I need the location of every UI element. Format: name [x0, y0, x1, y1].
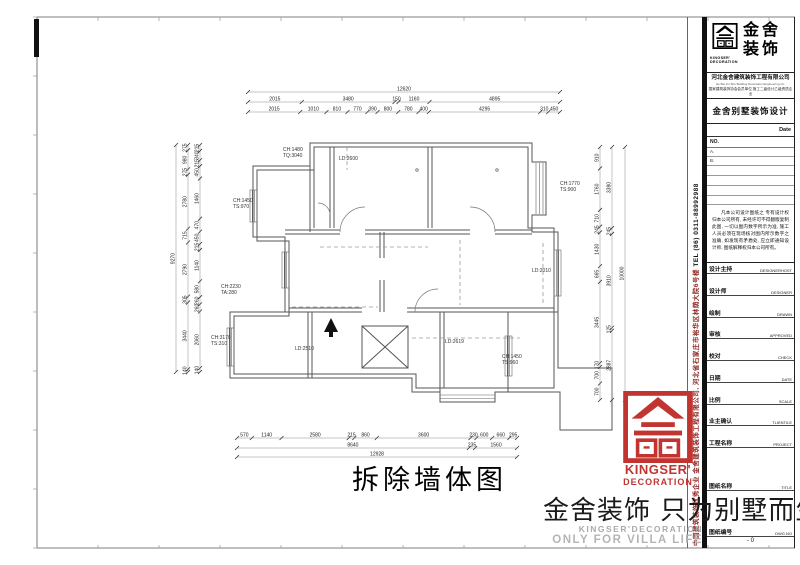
field-label-en: TITLE: [781, 485, 792, 490]
svg-text:295: 295: [509, 433, 518, 439]
field-label-zh: 校对: [709, 351, 721, 360]
plan-label: LD:2600: [339, 157, 358, 163]
svg-text:810: 810: [333, 107, 342, 113]
svg-text:260: 260: [195, 296, 201, 305]
field-label-zh: 日期: [709, 373, 721, 382]
svg-text:3380: 3380: [607, 182, 613, 193]
ruled-line: [707, 196, 794, 206]
svg-text:580: 580: [195, 285, 201, 294]
svg-text:910: 910: [595, 153, 601, 162]
field-label-en: TLIENTILE: [772, 420, 792, 425]
field-label-en: DESIGNERHOST: [760, 268, 792, 273]
svg-text:3600: 3600: [418, 433, 429, 439]
side-tel-text: TEL (86) 0311-88992988: [693, 183, 700, 267]
svg-text:125: 125: [607, 325, 613, 334]
svg-text:450: 450: [550, 107, 559, 113]
svg-text:770: 770: [353, 107, 362, 113]
field-project-name: 工程名称PROJECT: [707, 437, 794, 480]
svg-text:1140: 1140: [261, 433, 272, 439]
rev-row-a: A.: [707, 148, 794, 157]
copyright-notice: 凡本公司设计图纸之 专有设计权归本公司所有, 未经许可不得翻版复制此图, 一切以…: [707, 205, 794, 262]
field-label-zh: 审核: [709, 329, 721, 338]
svg-text:400: 400: [420, 107, 429, 113]
field-label-en: APPROVED: [770, 333, 792, 338]
plan-label: CH:3170 TS:310: [211, 336, 231, 347]
field-drawn: 绘制DRAWN: [707, 307, 794, 329]
field-scale: 比例SCALE: [707, 394, 794, 416]
brand-name-en: KINGSER' DECORATION: [710, 56, 738, 64]
kingser-logo-icon: [712, 22, 738, 50]
svg-text:700: 700: [595, 387, 601, 396]
company-section: 河北金舍建筑装饰工程有限公司 He Bei Jin She Building D…: [707, 73, 794, 99]
field-label-en: DESIGNER: [771, 290, 792, 295]
svg-text:450: 450: [195, 233, 201, 242]
watermark-brand-en1: KINGSER': [610, 462, 706, 477]
field-date: 日期DATE: [707, 372, 794, 394]
floor-plan-walls: [230, 143, 612, 430]
border-corner-bar: [34, 19, 39, 57]
svg-text:1010: 1010: [308, 107, 319, 113]
svg-text:700: 700: [595, 371, 601, 380]
field-label-zh: 图纸编号: [709, 527, 732, 536]
field-label-en: CHECK: [778, 355, 792, 360]
plan-label: CH:1770 TS:900: [560, 182, 580, 193]
company-name-zh: 河北金舍建筑装饰工程有限公司: [707, 75, 794, 82]
brand-zh-line2: 装饰: [743, 40, 781, 59]
svg-text:140: 140: [183, 366, 189, 375]
title-block: 金舍 装饰 KINGSER' DECORATION 河北金舍建筑装饰工程有限公司…: [707, 17, 795, 548]
svg-text:1460: 1460: [195, 193, 201, 204]
field-label-zh: 图纸名称: [709, 481, 732, 490]
no-label: NO.: [707, 137, 794, 148]
field-sheet-number: 图纸编号DWG.NO - 0: [707, 526, 794, 548]
svg-text:2015: 2015: [269, 107, 280, 113]
svg-text:980: 980: [183, 155, 189, 164]
svg-text:660: 660: [497, 433, 506, 439]
svg-text:860: 860: [361, 433, 370, 439]
field-client-confirm: 业主确认TLIENTILE: [707, 415, 794, 437]
svg-text:3440: 3440: [183, 330, 189, 341]
field-check: 校对CHECK: [707, 350, 794, 372]
ruled-line: [707, 186, 794, 196]
field-label-en: SCALE: [779, 399, 792, 404]
kingser-logo-watermark-icon: [622, 389, 694, 465]
ruled-line: [707, 166, 794, 176]
plan-label: CH:1450 TS:960: [502, 355, 522, 366]
plan-label: LD:2619: [445, 340, 464, 346]
svg-text:1760: 1760: [595, 183, 601, 194]
field-label-zh: 设计师: [709, 286, 726, 295]
svg-text:150: 150: [392, 97, 401, 103]
svg-text:600: 600: [480, 433, 489, 439]
svg-text:2790: 2790: [183, 264, 189, 275]
svg-text:10000: 10000: [620, 266, 626, 280]
field-label-zh: 绘制: [709, 308, 721, 317]
door-arcs: [318, 203, 495, 312]
field-designerhost: 设计主持DESIGNERHOST: [707, 263, 794, 285]
svg-text:800: 800: [384, 107, 393, 113]
drawing-sheet: 1262020153480150116048952015101081077039…: [0, 0, 800, 565]
svg-text:665: 665: [595, 270, 601, 279]
svg-text:9270: 9270: [171, 253, 177, 264]
field-label-zh: 工程名称: [709, 438, 732, 447]
field-designer: 设计师DESIGNER: [707, 285, 794, 307]
brand-en-line2: DECORATION: [710, 60, 738, 64]
project-type-title: 金舍别墅装饰设计: [707, 99, 794, 124]
company-note: 国家建筑装饰协会会员单位 施工二级设计乙级资质企业: [707, 87, 794, 97]
svg-text:470: 470: [195, 221, 201, 230]
brand-zh-line1: 金舍: [743, 21, 781, 40]
plan-label: CH:1450 TS:970: [233, 199, 253, 210]
rev-row-b: B.: [707, 157, 794, 166]
svg-text:715: 715: [183, 231, 189, 240]
title-block-brand: 金舍 装饰 KINGSER' DECORATION: [707, 17, 794, 73]
sheet-title: 拆除墙体图: [352, 458, 507, 497]
svg-text:2780: 2780: [183, 196, 189, 207]
plan-label: LD:2010: [532, 269, 551, 275]
field-label-en: DATE: [782, 377, 792, 382]
svg-text:4295: 4295: [479, 107, 490, 113]
svg-text:2060: 2060: [195, 334, 201, 345]
svg-text:8640: 8640: [347, 443, 358, 449]
svg-text:1560: 1560: [491, 443, 502, 449]
svg-text:3445: 3445: [595, 317, 601, 328]
field-label-en: DWG.NO: [775, 531, 792, 536]
svg-text:4895: 4895: [489, 97, 500, 103]
field-label-zh: 比例: [709, 395, 721, 404]
svg-text:2887: 2887: [607, 360, 613, 371]
svg-text:12620: 12620: [397, 87, 411, 93]
field-label-zh: 业主确认: [709, 416, 732, 425]
watermark-sub2: ONLY FOR VILLA LIFE: [545, 534, 703, 546]
svg-text:570: 570: [240, 433, 249, 439]
field-approved: 审核APPROVED: [707, 328, 794, 350]
ruled-line: [707, 176, 794, 186]
svg-text:3910: 3910: [607, 275, 613, 286]
svg-text:1160: 1160: [409, 97, 420, 103]
field-label-en: PROJECT: [773, 442, 792, 447]
field-label-zh: 设计主持: [709, 264, 732, 273]
north-arrow-icon: [324, 318, 338, 337]
svg-text:390: 390: [368, 107, 377, 113]
watermark-brand-en2: DECORATION: [610, 477, 706, 487]
svg-text:260: 260: [195, 304, 201, 313]
svg-text:2580: 2580: [310, 433, 321, 439]
svg-text:340: 340: [195, 151, 201, 160]
watermark-slogan: 金舍装饰 只为别墅而生。: [543, 490, 800, 527]
plan-label: CH:1480 TQ:3040: [283, 148, 303, 159]
svg-text:310: 310: [540, 107, 549, 113]
date-label: Date: [707, 124, 794, 137]
svg-text:3480: 3480: [343, 97, 354, 103]
svg-text:780: 780: [404, 107, 413, 113]
svg-text:450: 450: [195, 168, 201, 177]
svg-text:1140: 1140: [195, 260, 201, 271]
svg-text:12928: 12928: [370, 452, 384, 458]
brand-name-zh: 金舍 装饰: [743, 21, 781, 59]
svg-text:1430: 1430: [595, 244, 601, 255]
sheet-number-value: - 0: [707, 538, 794, 544]
plan-label: CH:2230 TA:280: [221, 285, 241, 296]
plan-label: LD:2510: [295, 347, 314, 353]
svg-text:710: 710: [595, 214, 601, 223]
svg-text:2015: 2015: [269, 97, 280, 103]
field-label-en: DRAWN: [777, 312, 792, 317]
